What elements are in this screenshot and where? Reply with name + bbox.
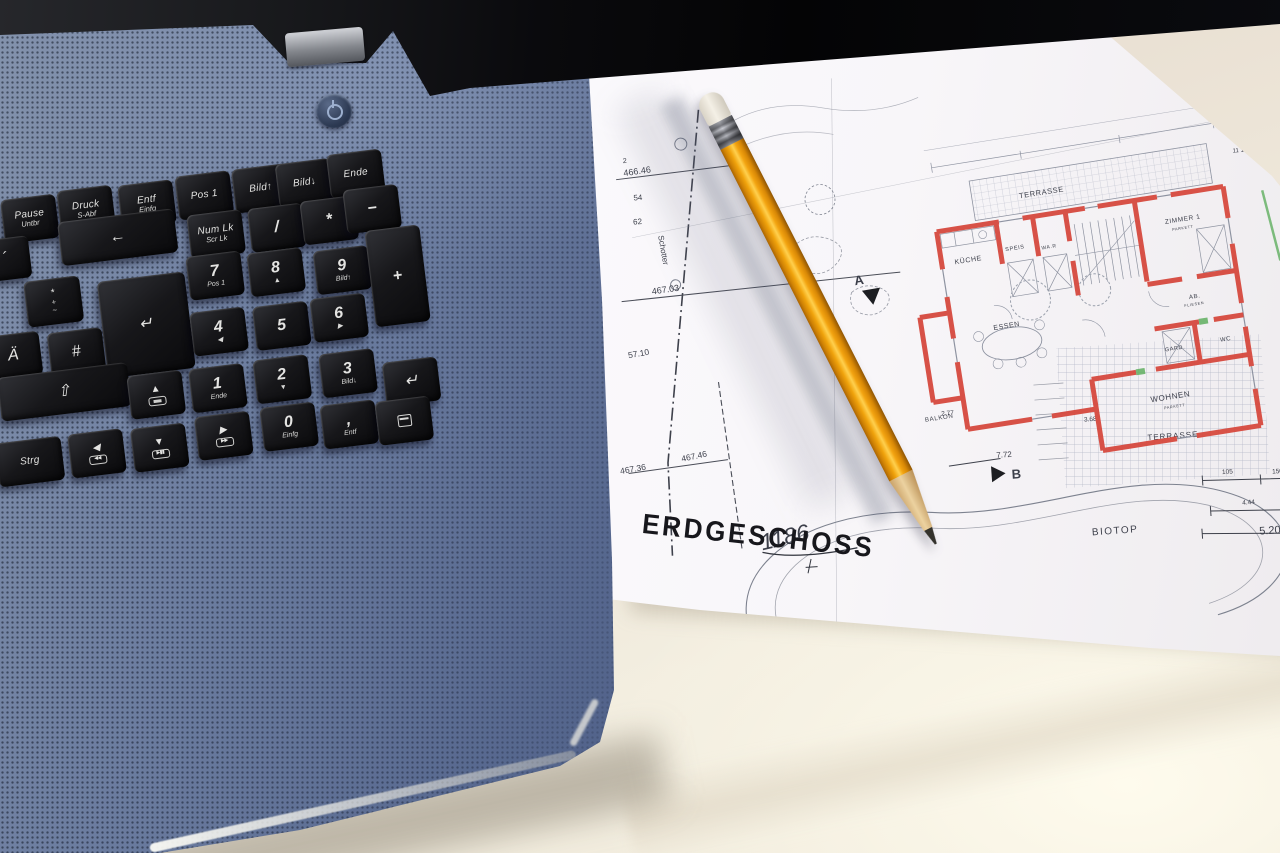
elevation-467-36: 467.36 (619, 462, 647, 476)
key-label: ◀ (92, 442, 101, 453)
room-label-speis: SPEIS (1005, 244, 1025, 253)
prev-track-icon: ◀◀ (88, 454, 107, 465)
key-strg: Strg (0, 436, 65, 488)
room-label-zimmer1: ZIMMER 1 (1164, 213, 1201, 226)
key-np-divide: / (247, 203, 307, 253)
key-label: * (325, 212, 333, 229)
key-label: 4 (213, 319, 224, 336)
key-accent: ´ (0, 235, 32, 283)
key-label: 0 (283, 414, 294, 431)
display-toggle-icon (148, 395, 167, 406)
key-np0: 0Einfg (259, 402, 319, 452)
dim-4-44: 4.44 (1242, 499, 1255, 507)
laptop-hinge (285, 27, 366, 68)
plan-house-layer: A KÜCHE SPEIS WA.R ESSEN ZIMMER 1 PARKET… (803, 46, 1280, 546)
door-mark-green (1199, 317, 1209, 324)
key-comma: ,Entf (319, 399, 379, 449)
key-np-plus: + (364, 224, 430, 327)
key-np6: 6▶ (309, 293, 369, 343)
play-pause-icon: ▶▮▮ (151, 448, 170, 459)
key-label: / (273, 220, 280, 236)
elevation-467-46: 467.46 (680, 448, 708, 463)
key-label: 6 (333, 305, 344, 322)
key-label: ← (109, 228, 127, 247)
key-next-track: ▶▶▶ (194, 411, 254, 461)
key-label: Bild↑ (249, 182, 273, 195)
key-np4: 4◀ (189, 306, 249, 356)
key-sublabel: ▶ (337, 322, 343, 330)
key-np9: 9Bild↑ (312, 245, 372, 295)
key-sublabel: Entf (344, 428, 357, 437)
section-marker-a-arrow (862, 281, 886, 305)
key-label: 7 (209, 263, 220, 280)
key-display-toggle: ▲ (126, 370, 186, 420)
surface-note-schotter: Schotter (656, 235, 670, 266)
key-np8: 8▲ (246, 247, 306, 297)
key-label: 3 (342, 361, 353, 378)
key-label: − (366, 200, 378, 217)
power-button-icon (316, 94, 352, 128)
elevation-467-03: 467.03 (651, 283, 680, 297)
key-enter-main: ↵ (97, 271, 196, 378)
photo-scene: B 2 466.46 54 62 Schotter 467.03 57.10 4… (0, 0, 1280, 853)
calculator-icon (397, 414, 412, 428)
room-label-kueche: KÜCHE (954, 254, 982, 266)
key-calc (374, 395, 434, 445)
key-label: , (345, 412, 352, 428)
room-label-war: WA.R (1041, 243, 1057, 251)
load-bearing-walls (907, 186, 1261, 475)
room-label-ab: AB. (1189, 293, 1201, 301)
key-label: 2 (276, 367, 287, 384)
area-label-biotop: BIOTOP (1092, 524, 1139, 538)
key-np1: 1Ende (188, 363, 248, 413)
terrace-top-hatch (969, 144, 1212, 221)
dim-5-20: 5.20 (1259, 524, 1280, 537)
tree-symbol (1008, 277, 1054, 323)
room-sub-ab: FLIESEN (1184, 301, 1204, 308)
key-sublabel: ▼ (279, 384, 287, 392)
key-play-pause: ▼▶▮▮ (130, 422, 190, 472)
key-label: ▲ (150, 384, 161, 395)
key-sublabel: ▲ (273, 277, 281, 285)
key-label: ⇧ (56, 383, 72, 401)
key-label: Ä (7, 347, 20, 365)
key-np3: 3Bild↓ (318, 348, 378, 398)
key-sublabel: ~ (52, 306, 57, 314)
room-sub-zimmer1: PARKETT (1172, 225, 1194, 232)
key-label: ↵ (404, 372, 420, 390)
tree-symbol (1076, 271, 1113, 308)
key-sublabel: Einfg (282, 431, 299, 440)
key-sublabel: Pos 1 (207, 279, 226, 288)
key-label: 1 (212, 376, 223, 393)
key-label: ´ (1, 250, 9, 267)
key-np2: 2▼ (252, 354, 312, 404)
room-label-essen: ESSEN (993, 321, 1021, 332)
key-sublabel: Untbr (21, 219, 40, 229)
key-label: ▼ (153, 437, 164, 448)
room-sub-wohnen: PARKETT (1164, 403, 1186, 410)
lot-number: 2 (623, 158, 627, 165)
door-mark-green (1136, 368, 1146, 375)
green-boundary-mark (1262, 189, 1280, 261)
lot-number-62: 62 (633, 217, 643, 227)
key-label: Ende (343, 167, 369, 180)
next-track-icon: ▶▶ (215, 436, 234, 447)
key-label: ▶ (219, 425, 228, 436)
room-label-gard: GARD. (1165, 344, 1186, 353)
key-sublabel: Ende (210, 392, 227, 401)
spot-height-57-10: 57.10 (627, 347, 650, 361)
key-plus-asterisk: *+~ (23, 275, 84, 327)
section-marker-a: A (853, 272, 865, 288)
key-label: Strg (20, 455, 41, 468)
key-sublabel: Bild↑ (336, 274, 352, 283)
key-label: + (392, 267, 404, 284)
key-sublabel: Bild↓ (341, 377, 357, 386)
key-np5: 5 (252, 301, 312, 351)
lot-number-54: 54 (633, 193, 643, 203)
key-label: ↵ (138, 316, 154, 334)
key-np7: 7Pos 1 (185, 250, 245, 300)
key-label: 8 (270, 260, 281, 277)
key-sublabel: Scr Lk (206, 234, 228, 244)
key-label: 9 (336, 257, 347, 274)
room-label-wc: WC (1220, 336, 1232, 344)
key-label: 5 (276, 317, 287, 334)
key-prev-track: ◀◀◀ (67, 428, 127, 478)
key-label: Pos 1 (190, 189, 218, 203)
room-label-wohnen: WOHNEN (1150, 389, 1191, 404)
key-label: # (71, 343, 82, 361)
area-label-balkon: BALKON (924, 412, 953, 423)
key-label: Bild↓ (292, 176, 316, 189)
key-sublabel: ◀ (217, 336, 223, 344)
